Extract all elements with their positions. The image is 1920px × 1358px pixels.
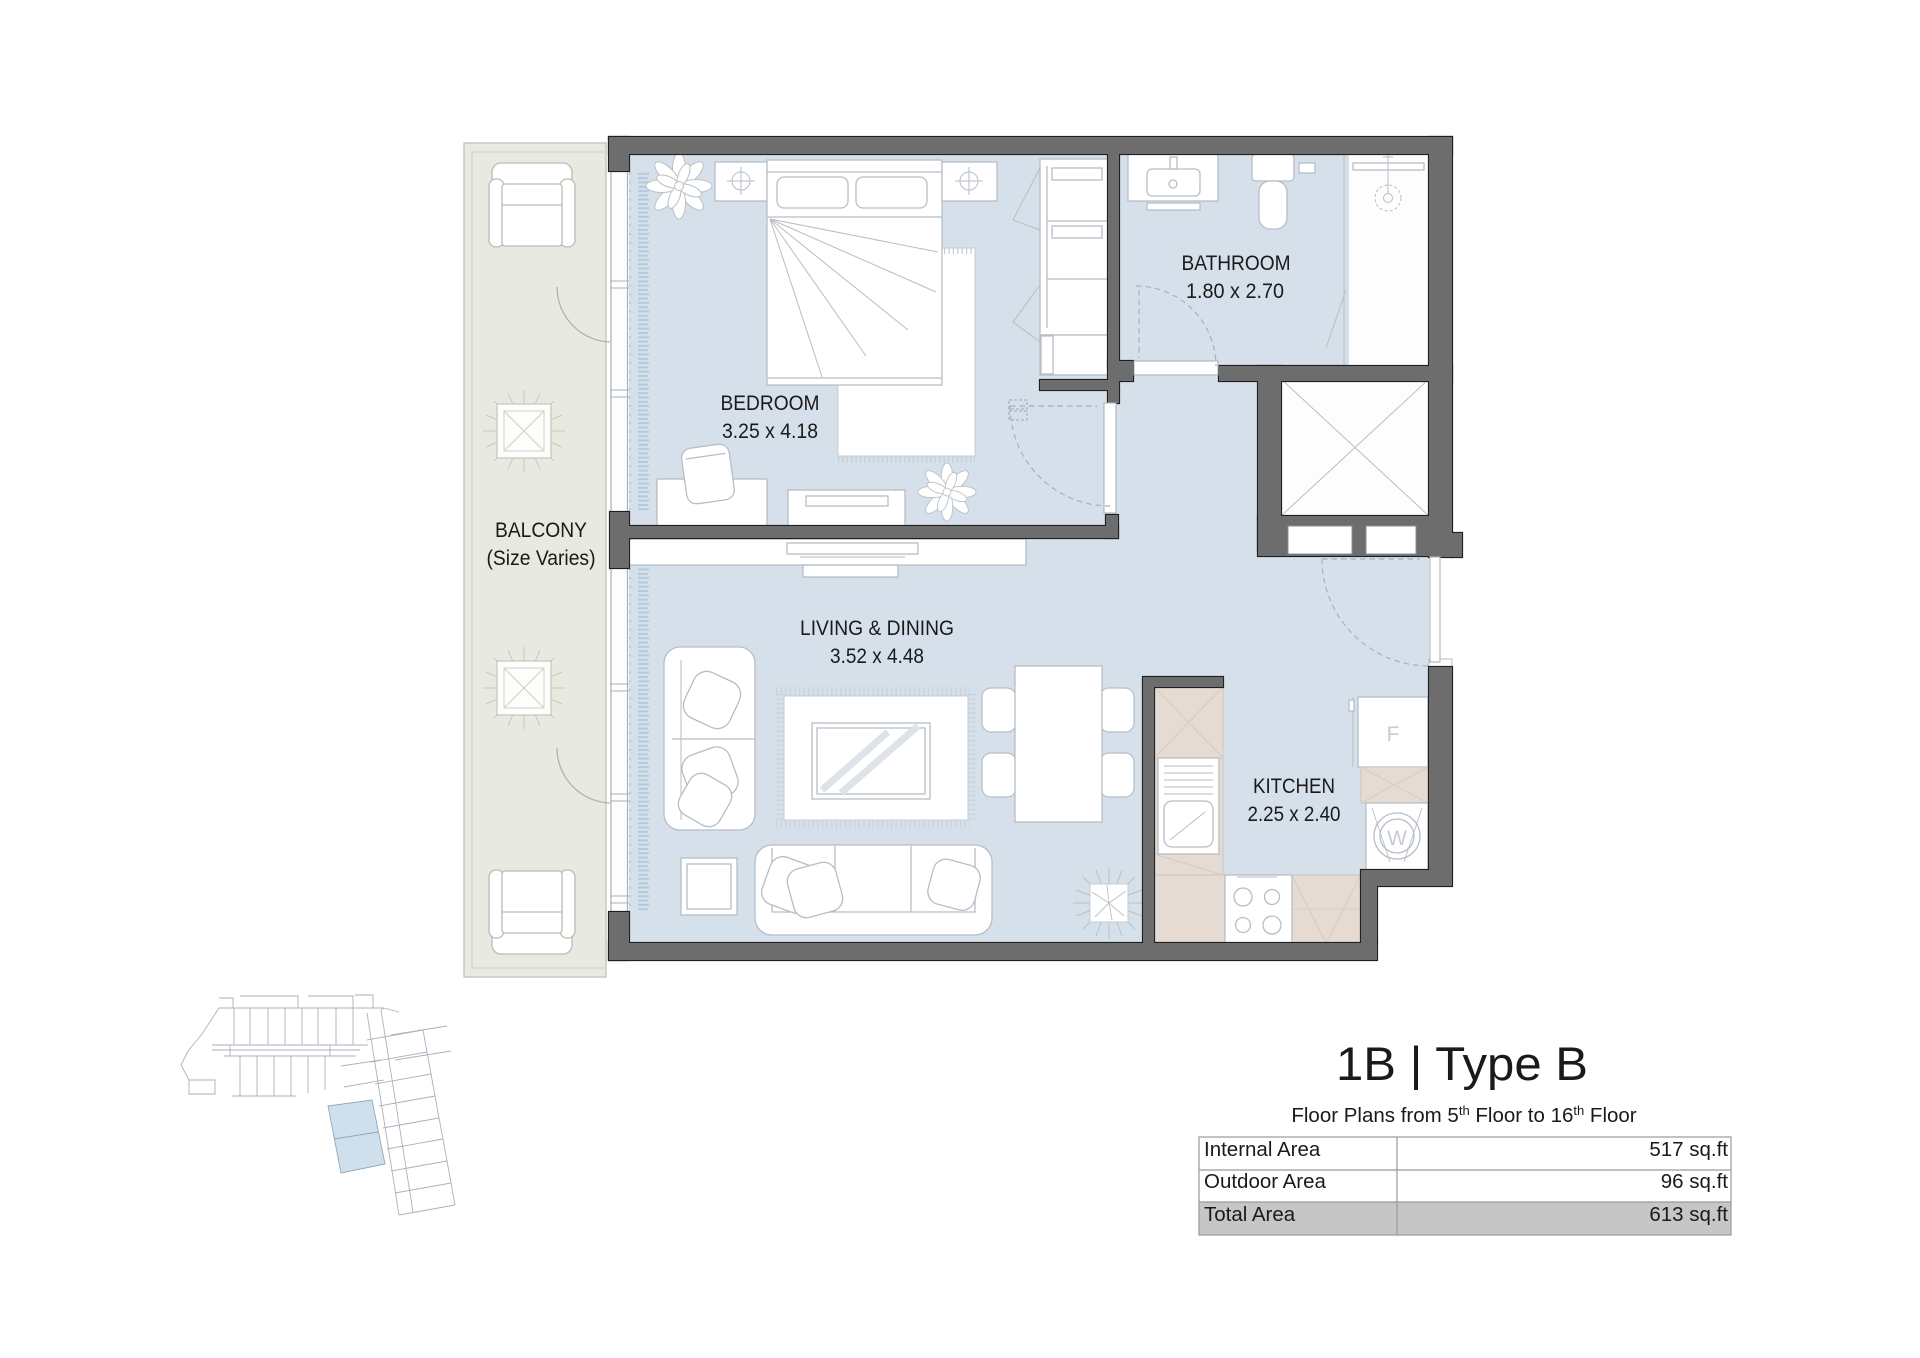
svg-text:96 sq.ft: 96 sq.ft [1661,1170,1729,1193]
svg-text:W: W [1387,827,1407,850]
svg-text:3.52 x 4.48: 3.52 x 4.48 [830,644,924,668]
svg-text:Internal Area: Internal Area [1204,1138,1321,1161]
svg-text:517 sq.ft: 517 sq.ft [1649,1138,1728,1161]
svg-text:2.25 x 2.40: 2.25 x 2.40 [1248,802,1341,826]
svg-text:KITCHEN: KITCHEN [1253,774,1335,798]
svg-text:613 sq.ft: 613 sq.ft [1649,1203,1728,1226]
svg-text:F: F [1387,723,1400,746]
svg-text:BATHROOM: BATHROOM [1182,251,1291,275]
svg-text:3.25 x 4.18: 3.25 x 4.18 [722,419,818,443]
svg-text:Outdoor Area: Outdoor Area [1204,1170,1327,1193]
svg-text:1.80 x 2.70: 1.80 x 2.70 [1186,279,1284,303]
svg-text:1B | Type B: 1B | Type B [1336,1037,1588,1090]
svg-text:Total Area: Total Area [1204,1203,1296,1226]
svg-text:(Size Varies): (Size Varies) [487,546,596,570]
svg-text:BEDROOM: BEDROOM [721,391,820,415]
svg-text:BALCONY: BALCONY [495,518,587,542]
svg-text:LIVING & DINING: LIVING & DINING [800,616,954,640]
